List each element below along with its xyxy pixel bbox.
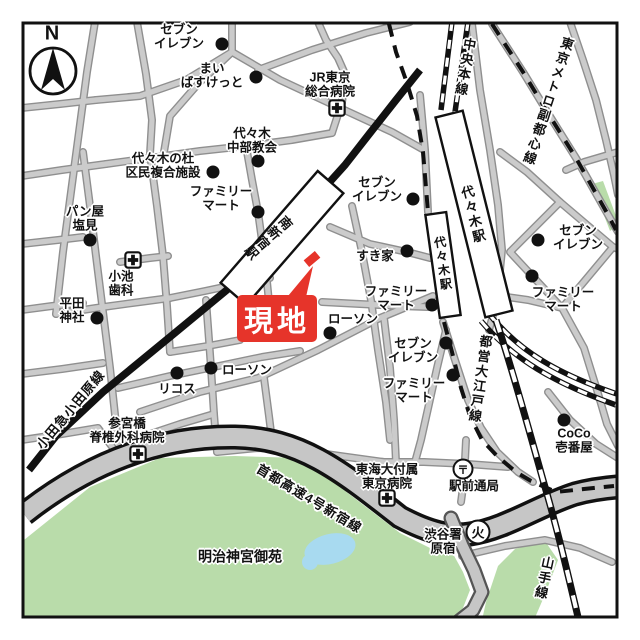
poi-label-seven-eleven-c: セブン イレブン [352, 176, 402, 204]
poi-label-bakery-shiomi: パン屋 塩見 [66, 205, 104, 233]
poi-label-lawson-w: ローソン [222, 364, 272, 378]
poi-dot [207, 166, 220, 179]
map-canvas: N 小田急小田原線 中央本線 東京メトロ副都心線 都営大江戸線 山手線 首都高速… [0, 0, 640, 640]
poi-label-sukiya: すき家 [356, 250, 394, 264]
poi-dot [532, 234, 545, 247]
poi-label-yoyogi-church: 代々木 中部教会 [227, 127, 277, 155]
poi-dot [324, 327, 337, 340]
area-label-meiji-jingu-gyoen: 明治神宮御苑 [198, 549, 282, 564]
poi-label-lawson-c: ローソン [328, 313, 378, 327]
hospital-icon [129, 445, 147, 463]
poi-label-familymart-s: ファミリー マート [383, 377, 446, 405]
poi-dot [526, 270, 539, 283]
poi-dot [252, 206, 265, 219]
poi-label-coco-ichibanya: CoCo 壱番屋 [555, 427, 593, 455]
poi-label-jr-tokyo-hospital: JR東京 総合病院 [305, 71, 355, 99]
poi-label-koike-dental: 小池 歯科 [108, 270, 133, 298]
poi-dot [440, 337, 453, 350]
poi-dot [401, 245, 414, 258]
poi-dot [447, 369, 460, 382]
poi-dot [171, 367, 184, 380]
poi-dot [252, 155, 265, 168]
poi-label-post-office: 駅前通局 [449, 480, 499, 494]
poi-label-seven-eleven-s: セブン イレブン [388, 337, 438, 365]
fire-station-icon: 火 [466, 520, 491, 545]
hospital-icon [378, 489, 396, 507]
road-segment [22, 237, 83, 244]
poi-dot [84, 234, 97, 247]
poi-label-sangubashi-hospital: 参宮橋 脊椎外科病院 [89, 417, 164, 445]
poi-label-seven-eleven-nw: セブン イレブン [154, 23, 204, 51]
poi-dot [91, 312, 104, 325]
poi-label-hirata-shrine: 平田 神社 [59, 297, 84, 325]
site-callout: 現地 [237, 295, 317, 342]
post-office-icon: 〒 [453, 459, 474, 480]
poi-label-fire-station: 渋谷署 原宿 [424, 528, 462, 556]
poi-dot [250, 71, 263, 84]
poi-label-familymart-c: ファミリー マート [365, 285, 428, 313]
poi-label-maibasket: まい ばすけっと [181, 62, 244, 90]
site-label: 現地 [244, 298, 310, 340]
hospital-icon [124, 251, 142, 269]
poi-dot [426, 299, 439, 312]
poi-dot [558, 414, 571, 427]
site-marker-icon [303, 250, 322, 268]
poi-label-kumin-facility: 代々木の杜 区民複合施設 [125, 152, 200, 180]
hospital-icon [328, 99, 346, 117]
poi-label-familymart-nw: ファミリー マート [190, 185, 253, 213]
north-compass-icon [30, 48, 76, 94]
poi-label-seven-eleven-e: セブン イレブン [553, 224, 603, 252]
poi-label-familymart-e: ファミリー マート [532, 286, 595, 314]
compass-north-label: N [45, 23, 59, 46]
poi-label-ricos: リコス [158, 383, 196, 397]
poi-dot [205, 362, 218, 375]
poi-dot [407, 193, 420, 206]
poi-label-tokai-hospital: 東海大付属 東京病院 [356, 463, 419, 491]
site-pointer [288, 266, 313, 297]
poi-dot [216, 38, 229, 51]
